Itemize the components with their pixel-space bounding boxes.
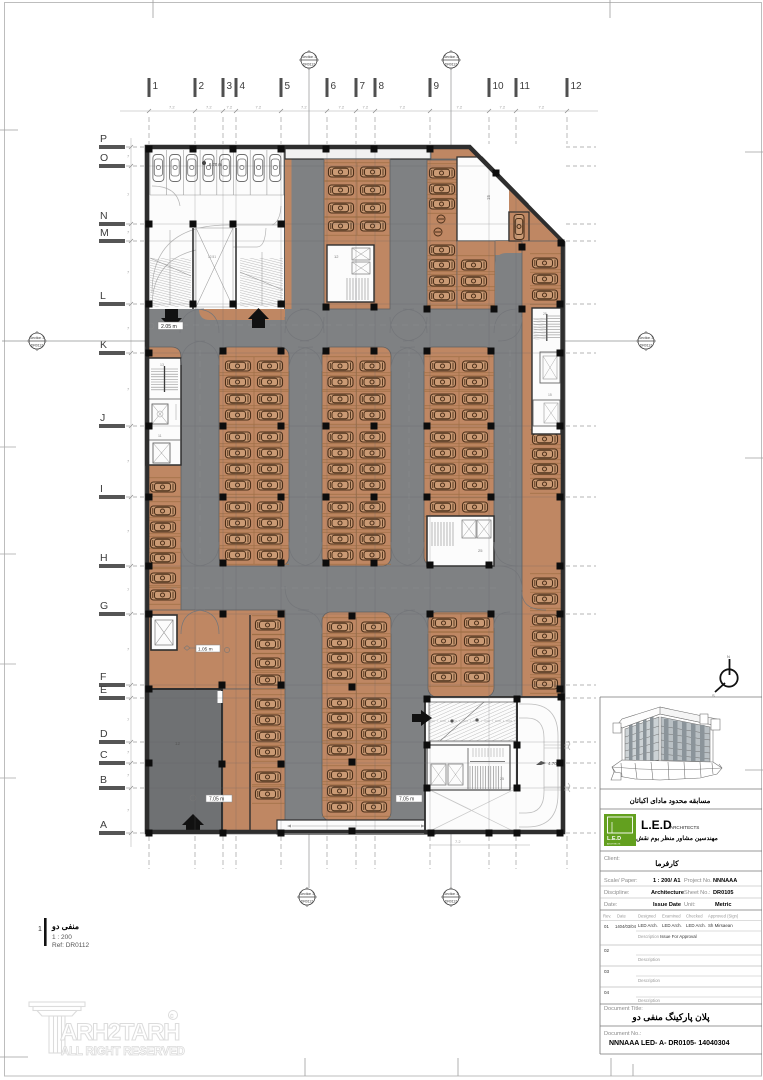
svg-text:Description: Description	[638, 998, 661, 1003]
svg-text:25: 25	[500, 777, 504, 781]
svg-text:F: F	[100, 671, 106, 683]
svg-text:03: 03	[604, 969, 610, 974]
svg-text:c: c	[170, 1013, 174, 1020]
svg-text:Section 1: Section 1	[444, 892, 458, 896]
svg-text:G: G	[100, 600, 108, 612]
svg-text:Date: Date	[617, 914, 627, 919]
svg-text:11: 11	[158, 434, 162, 438]
svg-text:15: 15	[486, 194, 491, 200]
svg-text:Discipline:: Discipline:	[604, 890, 630, 896]
svg-text:Unit:: Unit:	[684, 902, 696, 908]
svg-text:Ref: DR0112: Ref: DR0112	[52, 942, 89, 949]
svg-text:4: 4	[240, 81, 246, 92]
svg-text:1: 1	[38, 926, 42, 933]
svg-text:1 : 200/ A1: 1 : 200/ A1	[653, 878, 680, 884]
svg-text:8: 8	[379, 81, 385, 92]
svg-text:7.05 m: 7.05 m	[399, 797, 414, 803]
svg-text:Document No.:: Document No.:	[604, 1031, 642, 1037]
svg-text:DR0112: DR0112	[445, 63, 457, 67]
svg-text:P: P	[100, 133, 107, 145]
svg-text:J: J	[100, 412, 105, 424]
svg-text:7.2: 7.2	[169, 105, 175, 110]
svg-text:ARCHITECTS: ARCHITECTS	[670, 825, 699, 830]
svg-text:DR0112: DR0112	[31, 344, 43, 348]
svg-text:LED Arch.: LED Arch.	[686, 923, 706, 928]
svg-text:Designed: Designed	[638, 914, 656, 919]
svg-text:7.2: 7.2	[206, 105, 212, 110]
svg-text:2: 2	[199, 81, 205, 92]
svg-text:Section 1: Section 1	[302, 55, 316, 59]
svg-text:پلان پارکینگ منفی دو: پلان پارکینگ منفی دو	[631, 1011, 710, 1023]
svg-text:NNNAAA LED- A- DR0105- 1404030: NNNAAA LED- A- DR0105- 14040304	[609, 1040, 730, 1047]
svg-text:LED Arch.: LED Arch.	[638, 923, 658, 928]
svg-text:5: 5	[285, 81, 291, 92]
svg-text:E: E	[100, 684, 107, 696]
svg-text:02: 02	[604, 948, 610, 953]
svg-text:7.2: 7.2	[400, 105, 406, 110]
svg-text:NNNAAA: NNNAAA	[713, 878, 737, 884]
svg-text:7.2: 7.2	[539, 105, 545, 110]
svg-text:6.70 m: 6.70 m	[209, 162, 222, 167]
svg-text:7.2: 7.2	[301, 105, 307, 110]
svg-text:9: 9	[434, 81, 440, 92]
svg-text:L.E.D: L.E.D	[641, 818, 672, 832]
svg-text:ALL RIGHT RESERVED: ALL RIGHT RESERVED	[61, 1046, 185, 1058]
svg-text:1.05 m: 1.05 m	[198, 647, 213, 653]
svg-text:B: B	[100, 774, 107, 786]
svg-text:Project No.: Project No.	[684, 878, 712, 884]
svg-text:DR0112: DR0112	[301, 900, 313, 904]
svg-text:12: 12	[334, 254, 339, 259]
svg-text:7.2: 7.2	[455, 839, 461, 844]
svg-text:LED Arch.: LED Arch.	[662, 923, 682, 928]
svg-text:کارفرما: کارفرما	[655, 859, 679, 869]
svg-text:7.2: 7.2	[339, 105, 345, 110]
svg-text:Metric: Metric	[715, 902, 731, 908]
svg-text:Client:: Client:	[604, 856, 620, 862]
svg-text:25: 25	[543, 312, 547, 316]
svg-text:DR0112: DR0112	[303, 63, 315, 67]
svg-text:Sheet No.:: Sheet No.:	[684, 890, 711, 896]
svg-text:D: D	[100, 728, 108, 740]
svg-text:7.2: 7.2	[500, 105, 506, 110]
svg-text:M: M	[100, 227, 109, 239]
svg-text:N: N	[727, 654, 730, 659]
svg-text:Scale/ Paper:: Scale/ Paper:	[604, 878, 638, 884]
svg-text:Issue Date: Issue Date	[653, 902, 681, 908]
svg-text:N: N	[100, 210, 108, 222]
svg-text:Approved (Sign): Approved (Sign)	[708, 914, 739, 919]
svg-text:04: 04	[604, 990, 610, 995]
svg-text:منفی دو: منفی دو	[51, 922, 79, 932]
svg-text:Rev.: Rev.	[603, 914, 611, 919]
svg-text:H: H	[100, 552, 108, 564]
svg-text:7.2: 7.2	[363, 105, 369, 110]
svg-text:12.51: 12.51	[208, 255, 216, 259]
svg-text:ARH2TARH: ARH2TARH	[60, 1019, 179, 1046]
svg-text:01: 01	[604, 924, 609, 929]
svg-text:Section 1: Section 1	[444, 55, 458, 59]
svg-text:Description: Description	[638, 957, 661, 962]
svg-text:3: 3	[227, 81, 233, 92]
svg-text:12: 12	[571, 81, 583, 92]
svg-text:DR0105: DR0105	[713, 890, 734, 896]
svg-text:ARCHITECTS: ARCHITECTS	[607, 843, 621, 846]
svg-text:1 : 200: 1 : 200	[52, 934, 72, 941]
svg-text:10: 10	[493, 81, 505, 92]
svg-text:Section 1: Section 1	[30, 336, 44, 340]
svg-text:7.2: 7.2	[457, 105, 463, 110]
svg-text:مهندسین مشاور منظر بوم نقش: مهندسین مشاور منظر بوم نقش	[636, 835, 718, 842]
svg-text:Sh Mirsaean: Sh Mirsaean	[708, 923, 733, 928]
svg-text:DR0112: DR0112	[445, 900, 457, 904]
svg-text:L.E.D: L.E.D	[607, 836, 621, 842]
svg-text:6: 6	[331, 81, 337, 92]
svg-text:25: 25	[478, 548, 483, 553]
svg-text:I: I	[100, 483, 103, 495]
svg-text:7: 7	[360, 81, 366, 92]
svg-text:Section 1: Section 1	[639, 336, 653, 340]
svg-text:15: 15	[548, 393, 552, 397]
svg-text:O: O	[100, 152, 108, 164]
svg-text:Architecture: Architecture	[651, 890, 684, 896]
svg-text:Issue For Approval: Issue For Approval	[660, 934, 697, 939]
svg-text:1404/03/04: 1404/03/04	[615, 924, 637, 929]
svg-text:A: A	[100, 819, 107, 831]
svg-text:Examined: Examined	[662, 914, 681, 919]
svg-text:Section 1: Section 1	[300, 892, 314, 896]
svg-text:7.2: 7.2	[227, 105, 233, 110]
svg-text:7.2: 7.2	[256, 105, 262, 110]
svg-text:12: 12	[175, 741, 181, 746]
svg-text:2.05 m: 2.05 m	[161, 324, 177, 330]
svg-text:Date:: Date:	[604, 902, 618, 908]
svg-text:1: 1	[153, 81, 159, 92]
svg-text:Description: Description	[638, 978, 661, 983]
svg-text:Description: Description	[638, 934, 660, 939]
svg-text:13: 13	[160, 363, 164, 367]
svg-text:DR0112: DR0112	[640, 344, 652, 348]
svg-text:11: 11	[520, 81, 531, 92]
svg-text:Checked: Checked	[686, 914, 703, 919]
svg-text:L: L	[100, 290, 106, 302]
svg-text:C: C	[100, 749, 108, 761]
svg-text:مسابقه محدود مادای اکباتان: مسابقه محدود مادای اکباتان	[630, 797, 711, 805]
svg-text:7.05 m: 7.05 m	[209, 797, 224, 803]
